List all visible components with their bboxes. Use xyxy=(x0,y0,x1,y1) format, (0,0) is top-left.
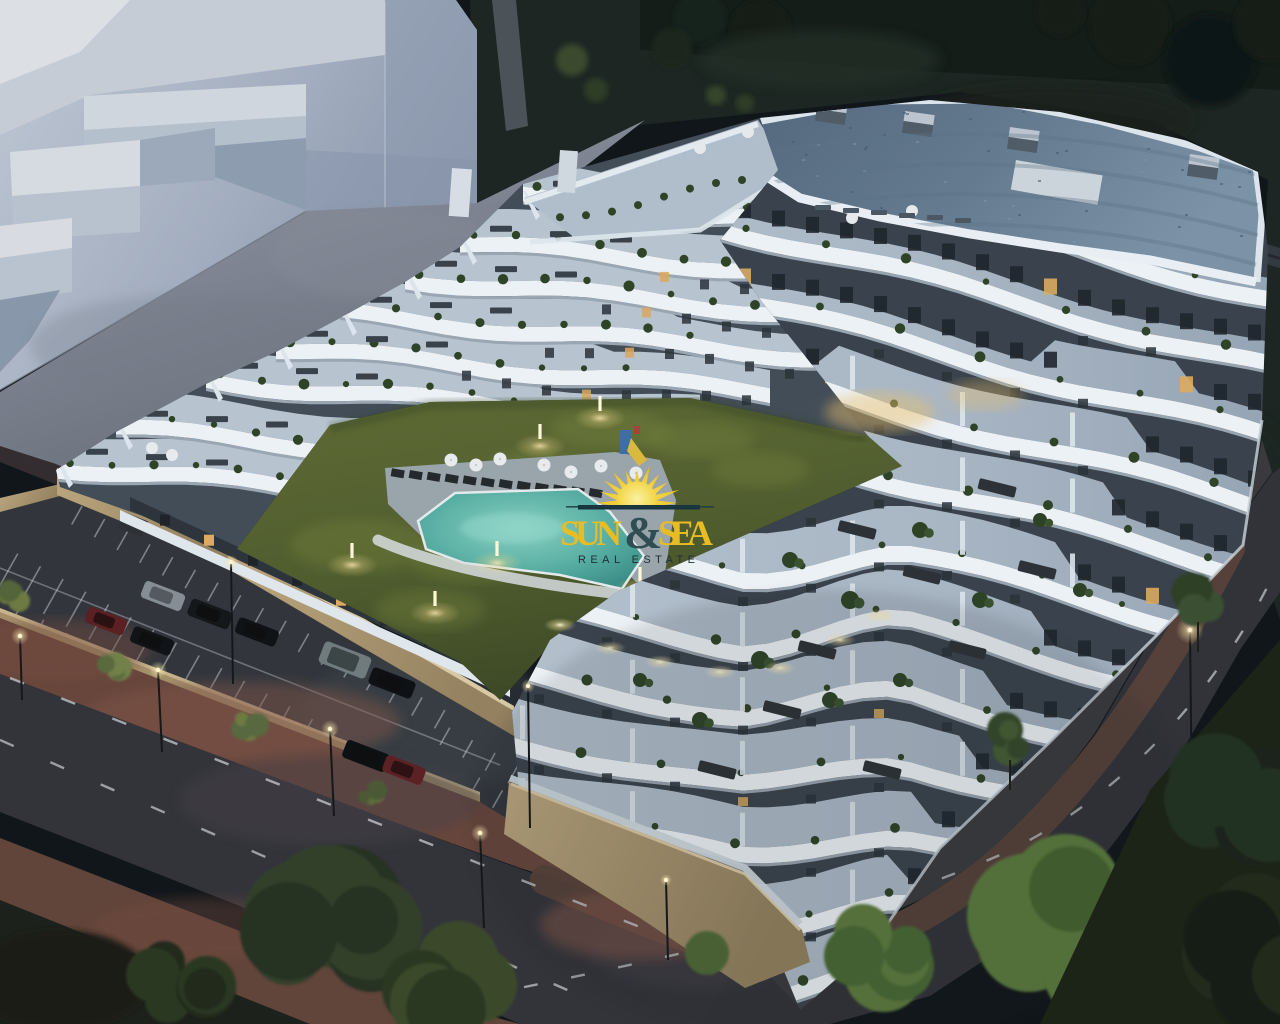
svg-text:&: & xyxy=(624,507,662,558)
svg-text:SEA: SEA xyxy=(658,513,713,553)
svg-text:REAL ESTATE: REAL ESTATE xyxy=(578,554,699,566)
svg-text:SUN: SUN xyxy=(560,513,622,553)
